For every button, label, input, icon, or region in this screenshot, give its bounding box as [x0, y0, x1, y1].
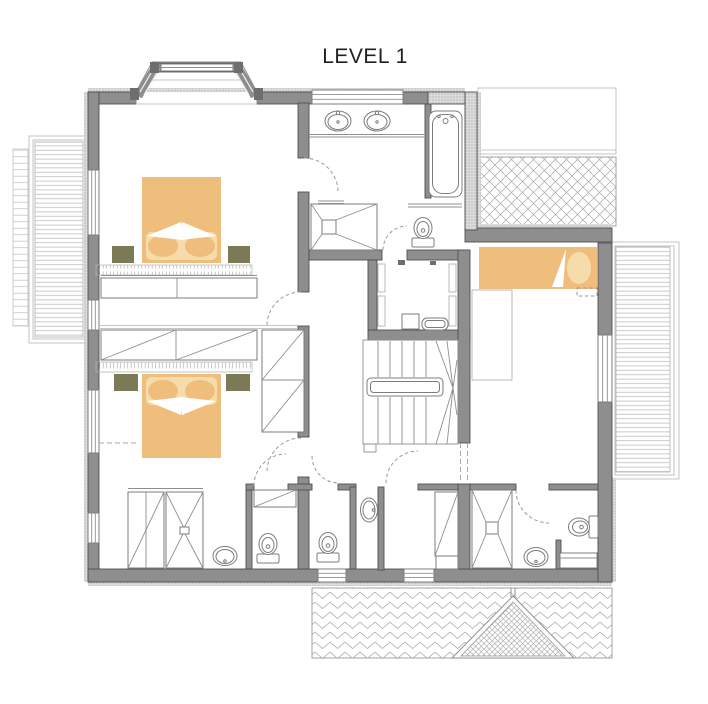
- bedroom2-bath-cabinet: [560, 553, 597, 568]
- bedroom1-headboard: [96, 265, 252, 275]
- utility-closet: [378, 260, 456, 330]
- washer: [402, 314, 419, 329]
- bedroom2-bed: [479, 247, 597, 289]
- sink-bedroom3-bath: [213, 547, 237, 566]
- left-window-4: [88, 513, 99, 543]
- shower-bedroom2: [472, 490, 512, 568]
- bedroom3-wardrobe-row: [101, 330, 257, 360]
- bedroom1-bed: [142, 177, 221, 263]
- toilet-wc1: [257, 534, 279, 564]
- left-window-3: [88, 390, 99, 453]
- left-window-1: [88, 170, 99, 235]
- bedroom3-closet-1: [128, 492, 164, 568]
- sink-hall-bath: [361, 498, 378, 522]
- left-balcony: [29, 136, 89, 343]
- toilet-wc2: [317, 533, 339, 563]
- bedroom3-bed: [142, 374, 221, 458]
- left-window-2: [88, 300, 99, 330]
- bedroom3-tall-closet: [262, 330, 304, 432]
- bay-window: [130, 62, 263, 104]
- hall-closet: [435, 492, 458, 569]
- pillow: [567, 252, 591, 284]
- bedroom-divider-line: [99, 326, 298, 329]
- level-title: LEVEL 1: [322, 45, 408, 68]
- nightstand: [114, 374, 138, 391]
- bedroom1-dresser: [101, 276, 257, 299]
- roof-hatch-bottom: [312, 588, 612, 658]
- bottom-window-1: [318, 569, 346, 582]
- bath-shelf: [408, 204, 462, 207]
- wc1-shelf: [254, 490, 296, 507]
- door-arc-bedroom3: [267, 438, 301, 472]
- nightstand: [112, 246, 134, 263]
- bath-sink-right: [364, 111, 390, 131]
- shower-master: [311, 201, 377, 250]
- door-arc-bath-hall: [383, 226, 407, 250]
- door-arc-bedroom2-bath: [516, 490, 549, 523]
- toilet-bedroom2-bath: [569, 516, 599, 538]
- bedroom3-headboard: [96, 362, 252, 372]
- bottom-window-2: [404, 569, 434, 582]
- staircase: [363, 340, 458, 452]
- door-arc-master-bath: [304, 158, 338, 192]
- door-arc-wc1: [254, 454, 286, 486]
- bedroom2-opening-dashes: [461, 443, 468, 484]
- door-arc-wc2: [312, 456, 339, 483]
- left-roof-edge-strip: [13, 149, 28, 326]
- upper-roof-plane: [478, 88, 616, 154]
- floor-plan: LEVEL 1: [0, 0, 708, 704]
- vanity-counter: [309, 135, 424, 138]
- nightstand: [226, 374, 250, 391]
- door-arc-hall-bath: [386, 451, 418, 483]
- door-arc-bedroom1: [267, 292, 301, 326]
- bath-sink-left: [325, 111, 351, 131]
- stair-rail: [367, 378, 443, 396]
- nightstand: [228, 246, 250, 263]
- floor-plan-page: LEVEL 1: [0, 0, 708, 704]
- right-balcony-door: [598, 335, 612, 402]
- roof-hatch-top-right: [478, 157, 616, 226]
- bathtub: [429, 111, 462, 197]
- bedroom2-desk: [472, 290, 512, 380]
- toilet-master-bath: [412, 218, 434, 248]
- bath-north-window: [312, 90, 403, 104]
- right-balcony: [611, 242, 679, 479]
- bedroom2-bedside: [577, 288, 597, 296]
- sink-bedroom2-bath: [524, 548, 548, 567]
